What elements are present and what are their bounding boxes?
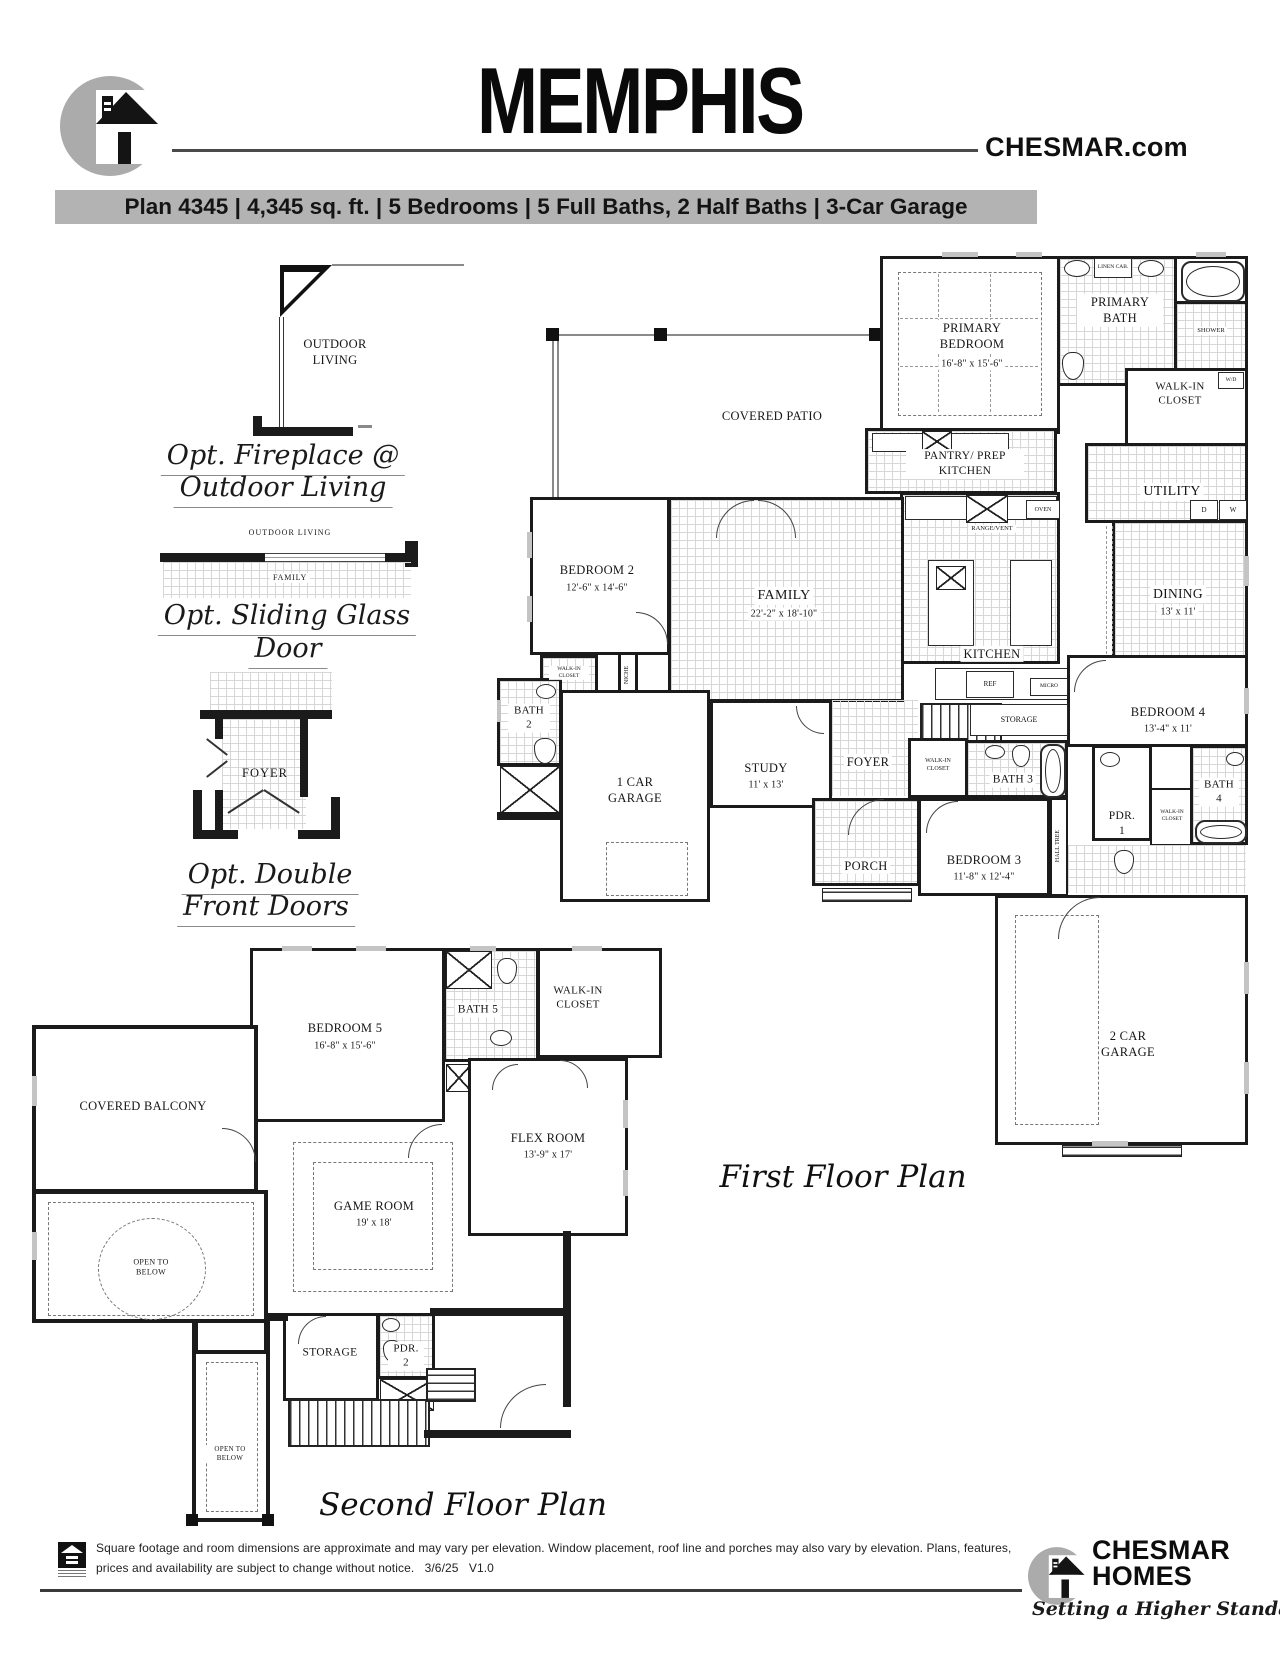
range-cooktop xyxy=(966,495,1008,523)
room-label: BATH 3 xyxy=(990,773,1036,788)
room-dims: 11' x 13' xyxy=(748,779,783,792)
room-dims: 19' x 18' xyxy=(356,1217,391,1230)
door-arc xyxy=(500,1384,546,1428)
room-label: PRIMARY BEDROOM xyxy=(916,320,1028,353)
room-label: WALK-IN CLOSET xyxy=(919,758,957,774)
portal-post xyxy=(186,1514,198,1526)
wall xyxy=(331,797,340,839)
room-label: DINING xyxy=(1150,585,1206,603)
room-label: WALK-IN CLOSET xyxy=(549,666,589,680)
room-label: WALK-IN CLOSET xyxy=(543,984,613,1013)
room-label: BATH 4 xyxy=(1199,778,1239,807)
room-label: BATH 5 xyxy=(455,1003,501,1018)
second-floor-title: Second Floor Plan xyxy=(319,1487,607,1523)
window xyxy=(623,1100,628,1128)
room-label: BEDROOM 3 xyxy=(947,852,1022,868)
room-dims: 13'-9" x 17' xyxy=(524,1149,572,1162)
door-arc xyxy=(408,1124,442,1158)
shower-pan xyxy=(500,766,560,814)
window xyxy=(32,1232,37,1260)
room-label: PDR. 2 xyxy=(388,1342,424,1371)
room-label: STORAGE xyxy=(303,1346,358,1361)
wall xyxy=(279,317,284,427)
room-label: PRIMARY BATH xyxy=(1077,294,1163,327)
room-label: GAME ROOM xyxy=(334,1198,414,1214)
window xyxy=(356,946,386,951)
room-label: WALK-IN CLOSET xyxy=(1142,380,1218,409)
porch-floor xyxy=(210,672,332,710)
window xyxy=(527,532,532,558)
cased-opening xyxy=(1112,526,1113,654)
room-label: STUDY xyxy=(744,760,787,776)
plan-spec-banner: Plan 4345 | 4,345 sq. ft. | 5 Bedrooms |… xyxy=(55,190,1037,224)
area-label: OUTDOOR LIVING xyxy=(249,528,332,538)
wall xyxy=(424,1430,571,1438)
foyer-floor xyxy=(832,700,918,796)
garage-stoop xyxy=(1062,1145,1182,1157)
wall xyxy=(332,264,464,266)
footer-rule xyxy=(40,1589,1022,1592)
room-label: 2 CAR GARAGE xyxy=(1096,1028,1160,1061)
window xyxy=(527,596,532,622)
window xyxy=(1092,1141,1128,1146)
room-label: BATH 2 xyxy=(508,704,550,733)
patio-edge xyxy=(552,336,554,498)
room-label: FAMILY xyxy=(270,573,310,583)
room-label: BEDROOM 5 xyxy=(308,1020,383,1036)
option-caption: Opt. Double xyxy=(182,859,359,895)
plan-name: MEMPHIS xyxy=(477,54,803,148)
wall xyxy=(430,1308,570,1316)
patio-post xyxy=(546,328,559,341)
brand-tagline: Setting a Higher Standard xyxy=(1032,1598,1280,1620)
window xyxy=(1016,252,1042,257)
window xyxy=(470,946,496,951)
room-label: BEDROOM 4 xyxy=(1131,704,1206,720)
sink xyxy=(490,1030,512,1046)
wall xyxy=(200,710,332,719)
wall xyxy=(160,553,265,562)
wall xyxy=(192,1320,198,1354)
brand-name: CHESMAR HOMES xyxy=(1092,1538,1230,1589)
cased-opening xyxy=(1106,526,1107,654)
linen-cabinet: LINEN CAB. xyxy=(1094,258,1132,278)
window xyxy=(1244,1062,1249,1094)
wall xyxy=(563,1231,571,1407)
room-label: PDR. 1 xyxy=(1107,809,1137,839)
disclaimer-line2: prices and availability are subject to c… xyxy=(96,1561,494,1575)
fixture-label: RANGE/VENT xyxy=(968,525,1016,533)
sink xyxy=(985,745,1005,759)
room-label: FOYER xyxy=(242,765,288,781)
room-dims: 16'-8" x 15'-6" xyxy=(938,358,1005,371)
stairs xyxy=(426,1368,476,1402)
room-label: OUTDOOR LIVING xyxy=(303,336,367,369)
stairs xyxy=(288,1399,430,1447)
room-dims: 22'-2" x 18'-10" xyxy=(748,608,821,621)
bathtub xyxy=(1195,820,1247,844)
window xyxy=(1244,688,1249,714)
portal-post xyxy=(262,1514,274,1526)
wall xyxy=(497,812,565,820)
room-label: FLEX ROOM xyxy=(511,1130,586,1146)
garage-hall-floor xyxy=(1068,845,1246,893)
room-label: BEDROOM 2 xyxy=(560,562,635,578)
window xyxy=(1244,962,1249,994)
garage-door-outline xyxy=(1015,915,1099,1125)
window xyxy=(1196,252,1226,257)
refrigerator-box: REF xyxy=(966,671,1014,698)
sink xyxy=(1226,752,1244,766)
wall xyxy=(215,719,223,739)
room-dims: 13'-4" x 11' xyxy=(1144,723,1192,736)
sink xyxy=(382,1318,400,1332)
window xyxy=(497,700,501,722)
storage-closet: STORAGE xyxy=(970,704,1068,736)
dryer-box: D xyxy=(1190,500,1218,520)
room-dims: 13' x 11' xyxy=(1157,606,1198,619)
bathtub xyxy=(1181,261,1245,302)
window xyxy=(282,946,312,951)
sink xyxy=(536,684,556,699)
floorplan-sheet: MEMPHIS CHESMAR.com Plan 4345 | 4,345 sq… xyxy=(0,0,1280,1659)
room-label: UTILITY xyxy=(1140,483,1203,501)
first-floor-title: First Floor Plan xyxy=(719,1159,966,1195)
wall xyxy=(215,790,223,832)
room-label: COVERED PATIO xyxy=(722,408,822,424)
microwave-box: MICRO xyxy=(1030,678,1068,696)
header-rule xyxy=(172,149,978,152)
sliding-glass-door xyxy=(265,553,385,562)
porch-steps xyxy=(822,888,912,902)
wall xyxy=(253,416,262,428)
stair-void xyxy=(206,1362,258,1512)
island-sink xyxy=(936,566,966,590)
room-label: PANTRY/ PREP KITCHEN xyxy=(906,449,1024,479)
room-label: FAMILY xyxy=(754,587,813,605)
garage-door-outline xyxy=(606,842,688,896)
room-dims: 12'-6" x 14'-6" xyxy=(566,582,627,595)
hall-tree-label: HALL TREE xyxy=(1055,830,1063,862)
room-label: OPEN TO BELOW xyxy=(128,1258,174,1279)
kitchen-island xyxy=(1010,560,1052,646)
wall xyxy=(300,719,308,797)
room-label: WALK-IN CLOSET xyxy=(1156,809,1188,823)
room-dims: 16'-8" x 15'-6" xyxy=(314,1040,375,1053)
window xyxy=(32,1076,37,1106)
equal-housing-opportunity-icon xyxy=(58,1542,86,1568)
washer-dryer-box: W/D xyxy=(1218,372,1244,389)
room-label: PORCH xyxy=(841,858,890,874)
room-label: SHOWER xyxy=(1194,327,1227,335)
washer-box: W xyxy=(1219,500,1247,520)
sink xyxy=(1064,260,1090,277)
brand-line2: HOMES xyxy=(1092,1564,1230,1590)
option-caption: Opt. Fireplace @ xyxy=(161,440,405,476)
room-label: FOYER xyxy=(844,754,892,770)
window xyxy=(1244,556,1249,586)
wall xyxy=(253,427,353,436)
eho-caption-lines xyxy=(58,1570,86,1577)
bathtub xyxy=(1040,744,1066,798)
window xyxy=(572,946,602,951)
fixture-label: NICHE xyxy=(624,666,632,684)
patio-post xyxy=(654,328,667,341)
room-label: COVERED BALCONY xyxy=(79,1098,206,1114)
oven-box: OVEN xyxy=(1026,500,1060,519)
room-label: 1 CAR GARAGE xyxy=(605,774,665,807)
fireplace-symbol-inner xyxy=(284,272,320,308)
option-caption: Door xyxy=(248,633,327,669)
brand-line1: CHESMAR xyxy=(1092,1538,1230,1564)
shower-pan xyxy=(446,951,492,989)
patio-edge xyxy=(552,334,884,336)
room-label: OPEN TO BELOW xyxy=(206,1445,254,1463)
website-text: CHESMAR.com xyxy=(960,132,1188,163)
room-dims: 11'-8" x 12'-4" xyxy=(953,871,1014,884)
wall xyxy=(264,1320,270,1354)
disclaimer-line1: Square footage and room dimensions are a… xyxy=(96,1541,1011,1555)
shower-room xyxy=(1174,301,1248,375)
sink xyxy=(1138,260,1164,277)
patio-edge xyxy=(557,336,559,498)
room-label: KITCHEN xyxy=(961,646,1024,662)
option-caption: Front Doors xyxy=(177,891,355,927)
wall xyxy=(193,830,238,839)
wall xyxy=(358,425,372,428)
window xyxy=(942,252,978,257)
option-caption: Outdoor Living xyxy=(174,472,393,508)
window xyxy=(623,1170,628,1196)
option-caption: Opt. Sliding Glass xyxy=(158,600,416,636)
sink xyxy=(1100,752,1120,767)
